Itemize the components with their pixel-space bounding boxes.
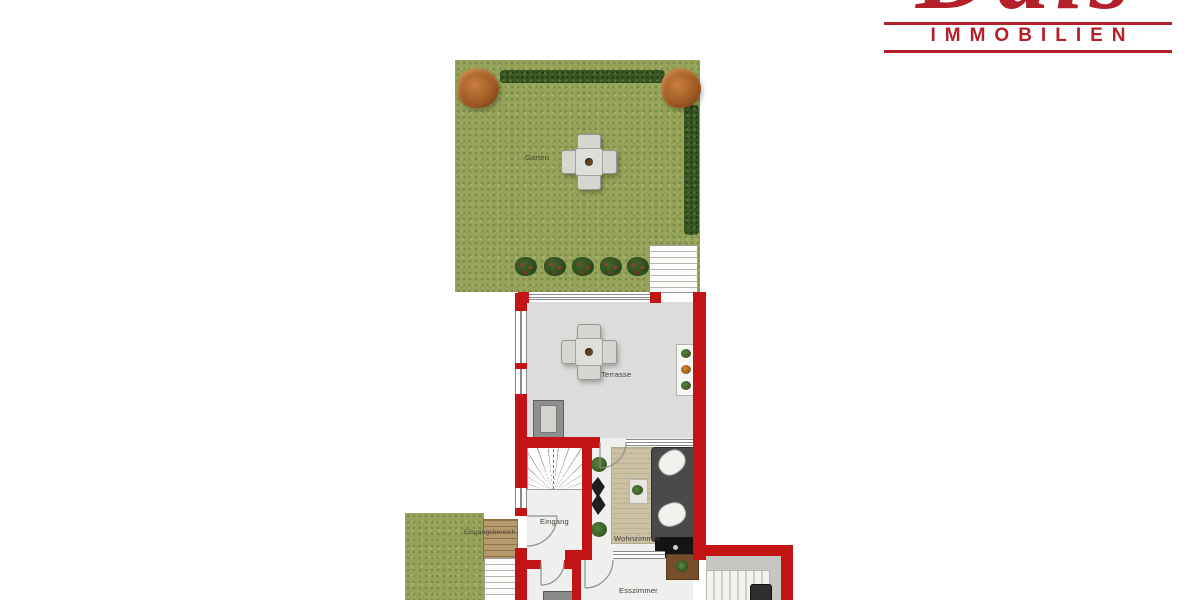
wall-segment (650, 292, 661, 303)
wall-segment (515, 448, 527, 488)
window (515, 369, 527, 394)
entrance-area-label: Eingangsbereich (464, 529, 515, 536)
brand-subtitle: IMMOBILIEN (880, 25, 1176, 47)
floorplan-page: Dais IMMOBILIEN Garten Terrasse (0, 0, 1200, 600)
wall-segment (781, 545, 793, 600)
plant-icon (585, 158, 593, 166)
wall-segment (700, 545, 793, 556)
garden-area: Garten (455, 60, 700, 292)
plant-icon (632, 485, 643, 495)
bush-icon (600, 257, 622, 276)
window (515, 488, 527, 508)
wall-segment (564, 560, 572, 569)
hedge-icon (500, 70, 665, 83)
bush-icon (515, 257, 537, 276)
wall-segment (582, 438, 592, 560)
wall-segment (527, 560, 541, 569)
wall-segment (515, 548, 527, 600)
side-table-icon (750, 584, 772, 600)
brand-rule-bottom (884, 50, 1172, 53)
bush-icon (627, 257, 649, 276)
winder-stairs-icon (527, 443, 589, 490)
stairs-icon (649, 245, 698, 293)
stairs-icon (484, 558, 518, 600)
wall-segment (515, 508, 527, 516)
terrace-label: Terrasse (601, 370, 631, 379)
front-garden-area (405, 513, 484, 600)
garden-table-icon (561, 134, 617, 190)
window (515, 311, 527, 363)
plant-icon (681, 365, 691, 374)
bush-icon (544, 257, 566, 276)
sliding-window (529, 294, 650, 300)
garden-label: Garten (525, 153, 549, 162)
wall-segment (515, 293, 527, 311)
wall-segment (565, 550, 585, 560)
plant-icon (681, 349, 691, 358)
window (613, 551, 665, 559)
brand-logo: Dais IMMOBILIEN (880, 0, 1180, 56)
dining-room-label: Esszimmer (619, 586, 658, 595)
tree-icon (661, 68, 701, 108)
plant-icon (591, 457, 607, 472)
entrance-deck (483, 519, 518, 561)
wall-segment (515, 394, 527, 440)
plant-icon (585, 348, 593, 356)
plant-icon (681, 381, 691, 390)
storage-box-icon (533, 400, 564, 438)
wall-segment (572, 560, 581, 600)
living-room-label: Wohnzimmer (614, 534, 660, 543)
entrance-label: Eingang (540, 517, 569, 526)
bush-icon (572, 257, 594, 276)
window (626, 439, 693, 446)
plant-icon (591, 522, 607, 537)
wall-segment (693, 293, 706, 560)
hedge-icon (684, 105, 699, 235)
storage-box-door (540, 405, 557, 433)
sideboard-icon (543, 591, 575, 600)
tree-icon (457, 68, 499, 108)
